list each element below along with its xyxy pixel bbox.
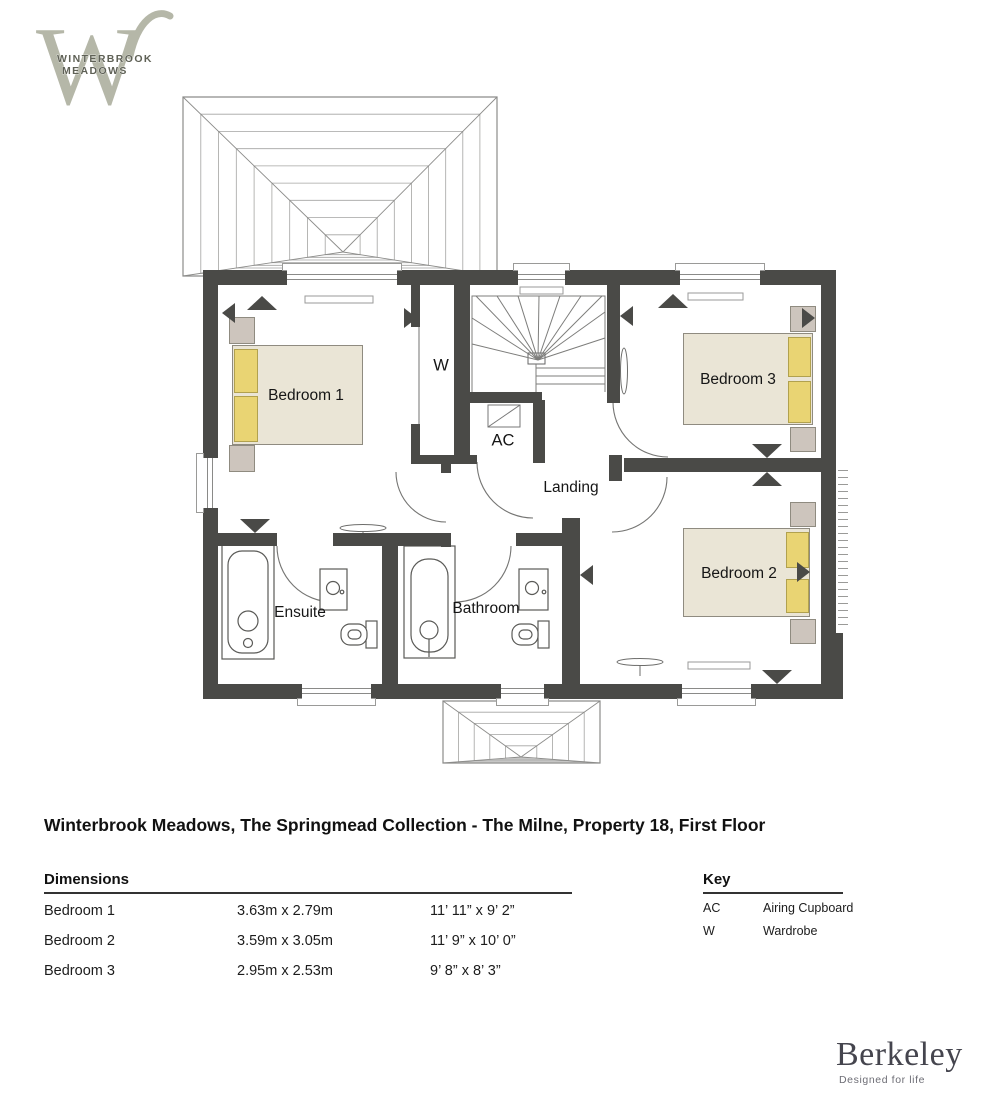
marker-triangle-icon: [247, 296, 277, 310]
window-bedroom3: [680, 270, 760, 285]
berkeley-tagline: Designed for life: [839, 1074, 925, 1086]
staircase: [472, 296, 605, 392]
bathroom-toilet: [512, 621, 549, 648]
key-abbr: W: [703, 924, 715, 938]
marker-triangle-icon: [797, 562, 810, 582]
label-bedroom1: Bedroom 1: [268, 387, 344, 405]
marker-triangle-icon: [240, 519, 270, 533]
ensuite-toilet: [341, 621, 377, 648]
bathroom-bath: [404, 546, 455, 658]
window-ensuite: [302, 684, 371, 699]
window-bedroom2: [682, 684, 751, 699]
window-stairs: [518, 270, 565, 285]
key-abbr: AC: [703, 901, 720, 915]
floorplan-page: W WINTERBROOK MEADOWS: [0, 0, 1000, 1100]
wall-stair-right: [607, 285, 620, 403]
bedroom1-pillow: [234, 349, 258, 393]
bedroom3-pillow: [788, 381, 811, 423]
dim-row-metric: 2.95m x 2.53m: [237, 963, 333, 979]
wall-ensuite-bathroom-divider: [382, 546, 398, 684]
wall-ensuite-top-right: [333, 533, 441, 546]
label-bedroom2: Bedroom 2: [701, 565, 777, 583]
bedroom2-door-arc: [612, 477, 667, 532]
bedroom3-side-table: [790, 427, 816, 452]
bedroom1-side-table: [229, 445, 255, 472]
wall-exterior-right-step: [836, 633, 843, 699]
bathroom-door-arc: [455, 546, 511, 602]
wall-bedroom3-door-cap: [609, 455, 622, 481]
label-bedroom3: Bedroom 3: [700, 371, 776, 389]
dim-row-metric: 3.63m x 2.79m: [237, 903, 333, 919]
berkeley-brand: Berkeley: [836, 1036, 963, 1074]
wall-ensuite-top-left: [218, 533, 277, 546]
bedroom3-pillow: [788, 337, 811, 377]
dim-row-imperial: 11’ 9” x 10’ 0”: [430, 933, 516, 949]
bedroom3-door-arc: [613, 402, 668, 457]
marker-triangle-icon: [762, 670, 792, 684]
wall-wardrobe-nib-bottom: [411, 424, 420, 455]
dim-row-room: Bedroom 1: [44, 903, 115, 919]
wall-bathroom-door-hinge: [441, 533, 451, 547]
bedroom2-pillow: [786, 579, 809, 613]
label-landing: Landing: [543, 479, 598, 497]
logo-line2: MEADOWS: [62, 65, 128, 77]
page-title: Winterbrook Meadows, The Springmead Coll…: [44, 815, 765, 836]
window-bedroom1: [287, 270, 397, 285]
key-rule: [703, 892, 843, 894]
bathroom-basin: [519, 569, 548, 610]
marker-triangle-icon: [658, 294, 688, 308]
wall-bedroom-divider: [624, 458, 836, 472]
airing-cupboard-door-arc: [477, 462, 533, 518]
dimensions-rule: [44, 892, 572, 894]
wall-stair-left: [454, 285, 470, 463]
exterior-cladding-ticks: [838, 470, 848, 630]
window-sill: [677, 698, 756, 706]
dim-row-imperial: 11’ 11” x 9’ 2”: [430, 903, 515, 919]
marker-triangle-icon: [404, 308, 417, 328]
key-label: Airing Cupboard: [763, 901, 853, 915]
window-bathroom: [501, 684, 544, 699]
label-bathroom: Bathroom: [452, 600, 519, 618]
label-ensuite: Ensuite: [274, 604, 326, 622]
dimensions-heading: Dimensions: [44, 871, 129, 888]
marker-triangle-icon: [752, 444, 782, 458]
key-label: Wardrobe: [763, 924, 817, 938]
label-airing-cupboard: AC: [492, 432, 515, 451]
bedroom1-pillow: [234, 396, 258, 442]
marker-triangle-icon: [222, 303, 235, 323]
wall-bathroom-right: [562, 518, 580, 684]
marker-triangle-icon: [752, 472, 782, 486]
ensuite-shower: [222, 545, 274, 659]
key-heading: Key: [703, 871, 731, 888]
airing-cupboard-shelf: [488, 405, 520, 427]
dim-row-metric: 3.59m x 3.05m: [237, 933, 333, 949]
wall-bedroom1-door-hinge: [441, 463, 451, 473]
marker-triangle-icon: [802, 308, 815, 328]
bedroom2-side-table: [790, 619, 816, 644]
dim-row-imperial: 9’ 8” x 8’ 3”: [430, 963, 501, 979]
wall-bathroom-top-right: [516, 533, 562, 546]
bedroom2-radiator: [617, 659, 663, 677]
marker-triangle-icon: [620, 306, 633, 326]
wall-stair-bottom: [456, 392, 542, 403]
bedroom2-side-table: [790, 502, 816, 527]
wall-ac-right: [533, 400, 545, 463]
window-sill: [496, 698, 549, 706]
bedroom1-door-arc: [396, 472, 446, 522]
main-roof-plan: [183, 97, 497, 276]
wall-exterior-right: [821, 270, 836, 699]
dim-row-room: Bedroom 2: [44, 933, 115, 949]
label-wardrobe: W: [433, 357, 449, 376]
logo-line1: WINTERBROOK: [57, 53, 153, 65]
window-left-wall: [203, 458, 218, 508]
dim-row-room: Bedroom 3: [44, 963, 115, 979]
window-sill: [297, 698, 376, 706]
marker-triangle-icon: [580, 565, 593, 585]
porch-roof-plan: [443, 701, 600, 763]
